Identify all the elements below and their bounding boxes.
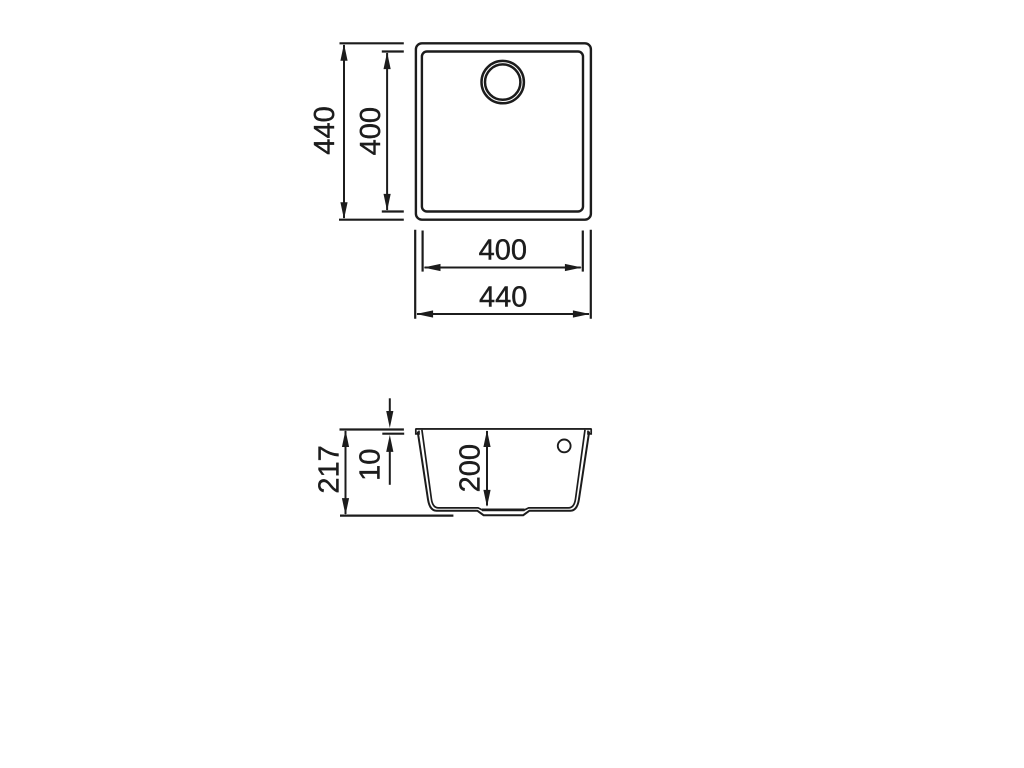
svg-text:217: 217	[314, 445, 346, 493]
svg-text:10: 10	[355, 449, 387, 481]
svg-text:400: 400	[479, 235, 527, 267]
svg-text:400: 400	[355, 107, 387, 155]
svg-text:440: 440	[309, 106, 341, 154]
svg-text:200: 200	[454, 444, 486, 492]
svg-text:440: 440	[479, 281, 527, 313]
